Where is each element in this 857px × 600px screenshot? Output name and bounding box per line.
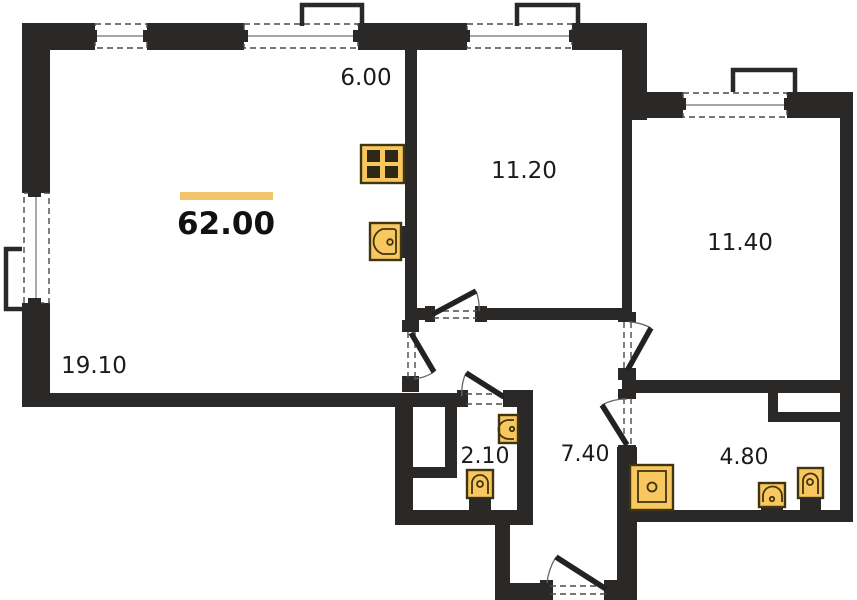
window-jamb <box>353 30 362 42</box>
window-jamb <box>143 30 152 42</box>
wall-segment <box>572 23 647 50</box>
balcony-outline <box>517 5 578 26</box>
washbasin-icon <box>499 415 521 443</box>
hallway-area-label: 7.40 <box>561 442 610 467</box>
shower-tray-icon <box>630 465 673 510</box>
wall-segment <box>625 510 853 522</box>
window-jamb <box>239 30 248 42</box>
wall-segment <box>622 380 840 393</box>
stove-burner <box>367 150 380 162</box>
door-jamb <box>503 390 517 407</box>
wall-segment <box>395 407 413 525</box>
window-jamb <box>784 98 793 110</box>
bathroom-large-area-label: 4.80 <box>720 445 769 470</box>
window-jamb <box>88 30 97 42</box>
wall-segment <box>395 510 533 525</box>
balcony-outline <box>302 5 362 26</box>
bathroom-small-area-label: 2.10 <box>461 444 510 469</box>
wall-segment <box>22 303 50 407</box>
total-area-underline <box>180 192 273 200</box>
door-jamb <box>540 580 553 600</box>
door-jamb <box>604 580 618 600</box>
stove-icon <box>361 145 404 183</box>
door-jamb <box>618 445 636 456</box>
kitchen-area-label: 6.00 <box>340 65 391 91</box>
floor-plan-drawing: 62.00 6.00 19.10 11.20 11.40 2.10 7.40 4… <box>0 0 857 600</box>
wall-segment <box>413 467 457 478</box>
door-jamb <box>618 312 636 322</box>
door-swing-arc <box>629 322 651 328</box>
door-swing-arc <box>602 399 627 405</box>
bedroom2-area-label: 11.40 <box>707 230 773 256</box>
window-jamb <box>461 30 470 42</box>
entrance-door-leaf <box>556 557 606 589</box>
stove-burner <box>385 150 398 162</box>
window-jamb <box>28 188 41 197</box>
living-area-label: 19.10 <box>61 353 127 379</box>
door-leaf <box>602 405 627 445</box>
door-jamb <box>402 320 419 332</box>
washbasin-icon <box>759 483 785 511</box>
wall-segment <box>517 390 533 525</box>
wall-segment <box>445 403 457 478</box>
stove-burner <box>385 166 398 178</box>
wall-segment <box>147 23 244 50</box>
wall-segment <box>477 308 632 320</box>
floor-plan: 62.00 6.00 19.10 11.20 11.40 2.10 7.40 4… <box>0 0 857 600</box>
door-jamb <box>475 306 487 322</box>
wall-segment <box>768 412 840 422</box>
wall-segment <box>622 50 647 120</box>
toilet-tank <box>469 498 491 511</box>
balcony-outline <box>733 70 795 92</box>
door-swing-arc <box>414 372 434 379</box>
wall-segment <box>22 393 466 407</box>
wall-segment <box>22 23 50 193</box>
total-area-label: 62.00 <box>177 206 275 242</box>
wall-segment <box>622 118 632 322</box>
wall-segment <box>840 92 853 522</box>
wall-segment <box>358 23 467 50</box>
toilet-icon <box>798 468 823 510</box>
toilet-tank <box>800 498 821 510</box>
toilet-icon <box>467 470 493 511</box>
balcony-outline <box>6 249 22 309</box>
toilet-bowl <box>798 468 823 498</box>
door-jamb <box>618 389 636 399</box>
window-jamb <box>677 98 686 110</box>
window-jamb <box>569 30 578 42</box>
window-jamb <box>28 298 41 307</box>
wall-segment <box>405 50 417 322</box>
kitchen-sink-icon <box>370 223 407 260</box>
bedroom1-area-label: 11.20 <box>491 158 557 184</box>
stove-burner <box>367 166 380 178</box>
door-swing-arc <box>547 557 556 583</box>
